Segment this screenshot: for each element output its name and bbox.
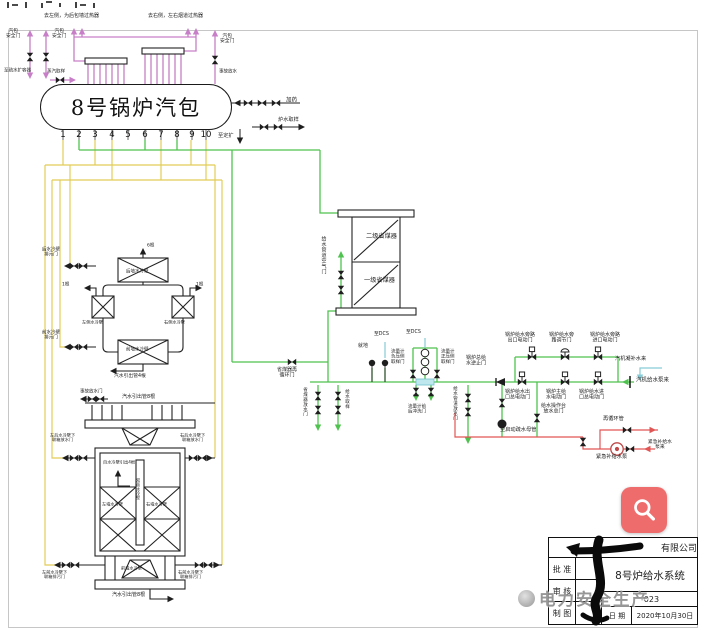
feedwater-valves [288,271,602,422]
title-block: 有限公司 批 准 审 核 制 图 8号炉给水系统 -023 日 期 2020年1… [548,537,698,625]
title-block-review-sign [575,579,602,602]
steam-arrows [27,28,218,83]
title-block-approve-sign [575,557,602,580]
magnifier-button[interactable] [621,487,667,533]
title-block-approve-label: 批 准 [549,557,575,580]
title-block-draft-label: 制 图 [549,601,575,625]
title-block-date: 2020年10月30日 [631,606,698,625]
title-block-date-label: 日 期 [601,606,632,625]
cropped-header-marks [8,2,94,8]
flow-transmitters [421,349,429,375]
dosing-sampling-lines [231,103,303,141]
title-block-draft-sign [575,601,602,625]
emergency-makeup-pump [611,443,623,455]
title-block-drawing-title: 8号炉给水系统 [601,557,698,592]
restriction-orifice [498,420,507,429]
steam-piping [30,30,215,84]
economizer [336,210,416,315]
flow-nozzle [416,379,434,385]
title-block-review-label: 审 核 [549,579,575,602]
title-block-drawing-no: -023 [601,591,698,607]
title-block-company: 有限公司 [549,538,704,557]
search-icon [627,490,661,530]
steam-drum-title: 8号锅炉汽包 [71,92,201,122]
diagram-viewer: 8号锅炉汽包 12345678910 去左侧，为后包墙过热器去右侧，左右烟道过热… [0,0,704,628]
lower-waterwall-assembly [56,399,222,599]
emergency-piping [455,413,658,449]
steam-drum: 8号锅炉汽包 [40,84,232,130]
